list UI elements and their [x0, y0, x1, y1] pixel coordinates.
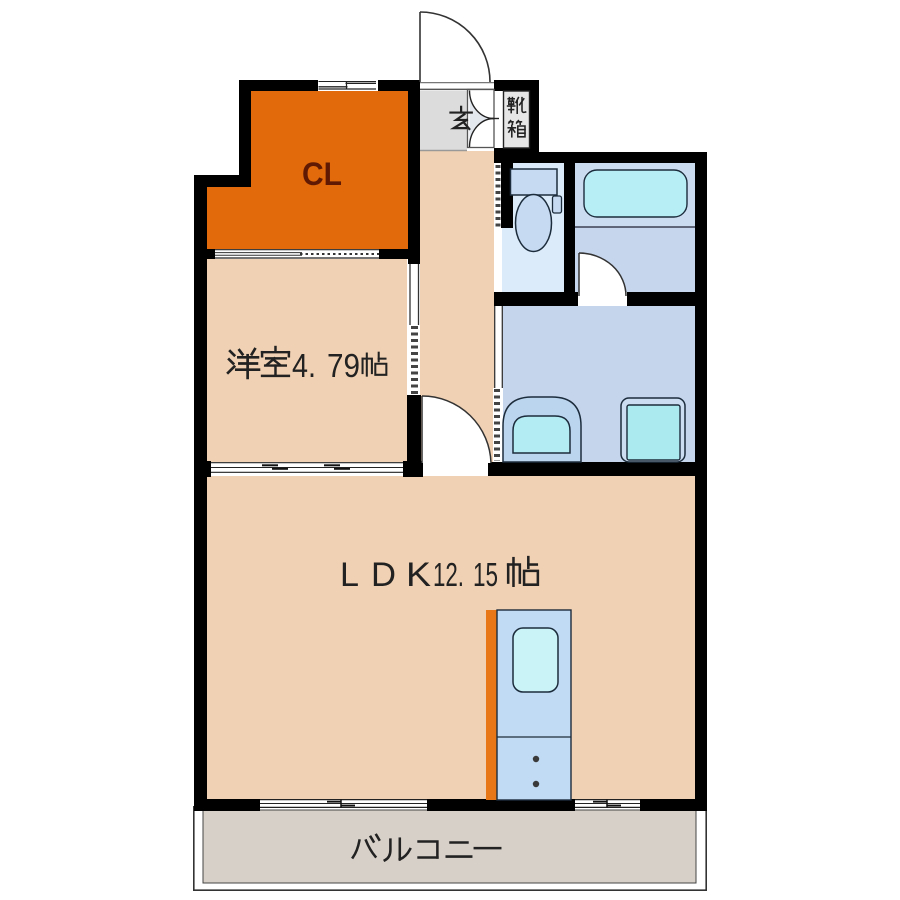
svg-text:L: L [340, 556, 359, 594]
svg-text:15: 15 [473, 556, 498, 593]
svg-text:79: 79 [327, 347, 360, 384]
svg-text:12.: 12. [433, 556, 464, 593]
svg-text:K: K [406, 556, 431, 594]
svg-text:CL: CL [302, 156, 342, 192]
svg-text:4.: 4. [292, 347, 316, 384]
svg-text:D: D [371, 556, 396, 594]
